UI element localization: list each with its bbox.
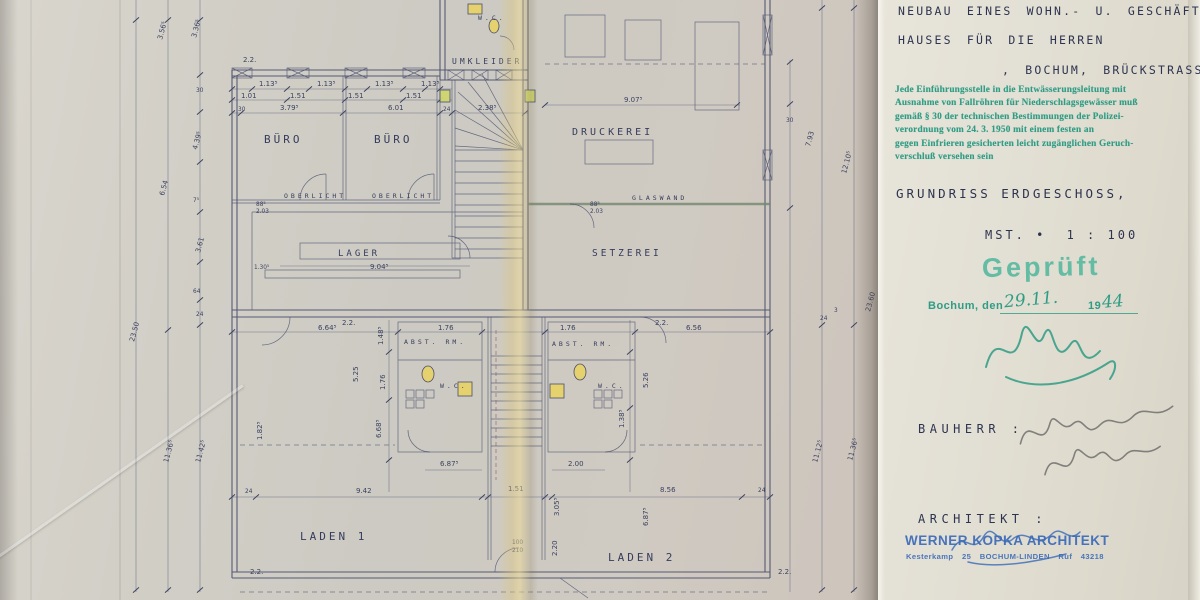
dim-label: 2.03 bbox=[256, 209, 269, 215]
dim-label: 1.76 bbox=[379, 374, 387, 390]
dim-label: 1.51 bbox=[406, 92, 422, 100]
dim-label: 1.13⁵ bbox=[317, 80, 336, 88]
regulation-stamp: Jede Einführungsstelle in die Entwässeru… bbox=[895, 84, 1181, 164]
room-label-wc-right: W.C. bbox=[598, 382, 626, 390]
dim-label: 5.25 bbox=[352, 366, 360, 382]
downpipe-marker bbox=[440, 90, 450, 102]
approval-stamp-text: Geprüft bbox=[982, 251, 1101, 284]
dim-label: 2.2. bbox=[342, 319, 355, 327]
dim-label: 11.12⁵ bbox=[811, 439, 825, 463]
dim-label: 9.07⁵ bbox=[624, 96, 643, 104]
dim-label: 1.13⁵ bbox=[375, 80, 394, 88]
dim-label: 3.79⁵ bbox=[280, 104, 299, 112]
dim-label: 6.87⁵ bbox=[642, 507, 650, 526]
regulation-line: Ausnahme von Fallröhren für Niederschlag… bbox=[895, 97, 1181, 110]
dim-label: 1.76 bbox=[560, 324, 576, 332]
dim-label: 88⁵ bbox=[256, 201, 266, 208]
dim-label: 30 bbox=[238, 107, 246, 113]
approver-signature bbox=[978, 305, 1128, 400]
room-label-buero2: BÜRO bbox=[374, 133, 413, 146]
dim-label: 2.03 bbox=[590, 209, 603, 215]
room-label-lager: LAGER bbox=[338, 249, 380, 259]
dim-label: 6.01 bbox=[388, 104, 404, 112]
dim-label: 6.64⁵ bbox=[318, 324, 337, 332]
project-title-line2: HAUSES FÜR DIE HERREN bbox=[898, 33, 1105, 47]
dim-label: 1.38⁵ bbox=[618, 409, 626, 428]
dim-label: 6.54 bbox=[158, 179, 170, 197]
floorplan-svg: BÜRO BÜRO DRUCKEREI SETZEREI LAGER UMKLE… bbox=[0, 0, 878, 600]
dim-label: 6.87⁵ bbox=[440, 460, 459, 468]
dim-label: 64 bbox=[193, 289, 201, 295]
dim-label: 3.36⁵ bbox=[190, 18, 203, 38]
dim-label: 24 bbox=[758, 488, 766, 494]
dim-label: 2.2. bbox=[250, 568, 263, 576]
dim-label: 3.05⁵ bbox=[553, 497, 561, 516]
room-label-glaswand: GLASWAND bbox=[632, 194, 687, 202]
dim-label: 24 bbox=[443, 107, 451, 113]
dim-label: 6.68⁵ bbox=[375, 419, 383, 438]
flap-edge-right bbox=[1188, 0, 1200, 600]
dim-label: 23.50 bbox=[128, 321, 141, 342]
dimension-chain-lines bbox=[136, 0, 854, 592]
dim-label: 1.82⁵ bbox=[256, 421, 264, 440]
dim-label: 88⁵ bbox=[590, 201, 600, 208]
room-label-buero1: BÜRO bbox=[264, 133, 303, 146]
fold-shadow bbox=[852, 0, 878, 600]
sink-fixture bbox=[468, 4, 482, 14]
dim-label: 1.76 bbox=[438, 324, 454, 332]
room-label-setzerei: SETZEREI bbox=[592, 248, 662, 259]
architect-signature bbox=[948, 518, 1088, 573]
room-label-oberlicht1: OBERLICHT bbox=[284, 192, 346, 200]
dim-label: 7.93 bbox=[804, 130, 816, 147]
dim-label: 2.2. bbox=[778, 568, 791, 576]
regulation-line: gegen Einfrieren gesicherten leicht zugä… bbox=[895, 138, 1181, 151]
dim-label: 1.48⁵ bbox=[377, 326, 385, 345]
dim-label: 30 bbox=[786, 118, 794, 124]
room-label-druckerei: DRUCKEREI bbox=[572, 127, 653, 138]
dim-label: 2.2. bbox=[655, 319, 668, 327]
scanned-blueprint-page: BÜRO BÜRO DRUCKEREI SETZEREI LAGER UMKLE… bbox=[0, 0, 1200, 600]
dim-label: 9.04⁵ bbox=[370, 263, 389, 271]
dim-label: 2.2. bbox=[243, 56, 256, 64]
dim-label: 5.26 bbox=[642, 372, 650, 388]
dim-label: 1.51 bbox=[290, 92, 306, 100]
dim-label: 30 bbox=[196, 88, 204, 94]
bauherr-signatures bbox=[1015, 392, 1195, 492]
regulation-line: verordnung vom 24. 3. 1950 mit einem fes… bbox=[895, 124, 1181, 137]
dim-label: 11.36⁵ bbox=[162, 439, 176, 463]
bauherr-label: BAUHERR : bbox=[918, 422, 1024, 436]
room-label-wc-left: W.C. bbox=[440, 382, 468, 390]
dim-label: 7⁵ bbox=[193, 197, 200, 204]
project-title-line1: NEUBAU EINES WOHN.- U. GESCHÄFTS- bbox=[898, 4, 1200, 18]
dim-label: 1.01 bbox=[241, 92, 257, 100]
dim-label: 2.00 bbox=[568, 460, 584, 468]
dim-label: 2.38⁵ bbox=[478, 104, 497, 112]
room-label-abst-left: ABST. RM. bbox=[404, 338, 466, 346]
dim-label: 24 bbox=[196, 312, 204, 318]
room-label-laden1: LADEN 1 bbox=[300, 530, 367, 543]
dim-label: 2.20 bbox=[551, 540, 559, 556]
dim-label: 11.42⁵ bbox=[194, 439, 208, 463]
dim-label: 6.56 bbox=[686, 324, 702, 332]
scale-value: 1 : 100 bbox=[1067, 228, 1139, 242]
paper-fold-highlight bbox=[498, 0, 538, 600]
dim-label: 1.51 bbox=[348, 92, 364, 100]
flap-edge-highlight bbox=[878, 0, 885, 600]
scale-label: MST. • bbox=[985, 228, 1046, 242]
toilet-fixture bbox=[422, 366, 434, 382]
project-title-line3: , BOCHUM, BRÜCKSTRASSE. bbox=[1002, 63, 1200, 77]
regulation-line: gemäß § 30 der technischen Bestimmungen … bbox=[895, 111, 1181, 124]
dim-label: 3.61 bbox=[194, 236, 206, 253]
dim-label: 4.39⁵ bbox=[191, 130, 204, 150]
regulation-line: verschluß versehen sein bbox=[895, 151, 1181, 164]
room-label-abst-right: ABST. RM. bbox=[552, 340, 614, 348]
dim-label: 1.13⁵ bbox=[421, 80, 440, 88]
drawing-title: GRUNDRISS ERDGESCHOSS, bbox=[896, 186, 1128, 201]
toilet-fixture bbox=[574, 364, 586, 380]
scale-row: MST. • 1 : 100 bbox=[985, 228, 1138, 242]
dim-label: 3 bbox=[834, 308, 838, 314]
dim-label: 1.13⁵ bbox=[259, 80, 278, 88]
dim-label: 3.56⁵ bbox=[156, 20, 169, 40]
room-label-oberlicht2: OBERLICHT bbox=[372, 192, 434, 200]
dim-label: 1.30⁵ bbox=[254, 264, 270, 271]
interior-walls bbox=[232, 15, 739, 560]
dim-label: 8.56 bbox=[660, 486, 676, 494]
dim-label: 9.42 bbox=[356, 487, 372, 495]
dim-label: 24 bbox=[245, 489, 253, 495]
cistern-fixture bbox=[550, 384, 564, 398]
room-label-laden2: LADEN 2 bbox=[608, 551, 675, 564]
dim-label: 24 bbox=[820, 316, 828, 322]
regulation-line: Jede Einführungsstelle in die Entwässeru… bbox=[895, 84, 1181, 97]
